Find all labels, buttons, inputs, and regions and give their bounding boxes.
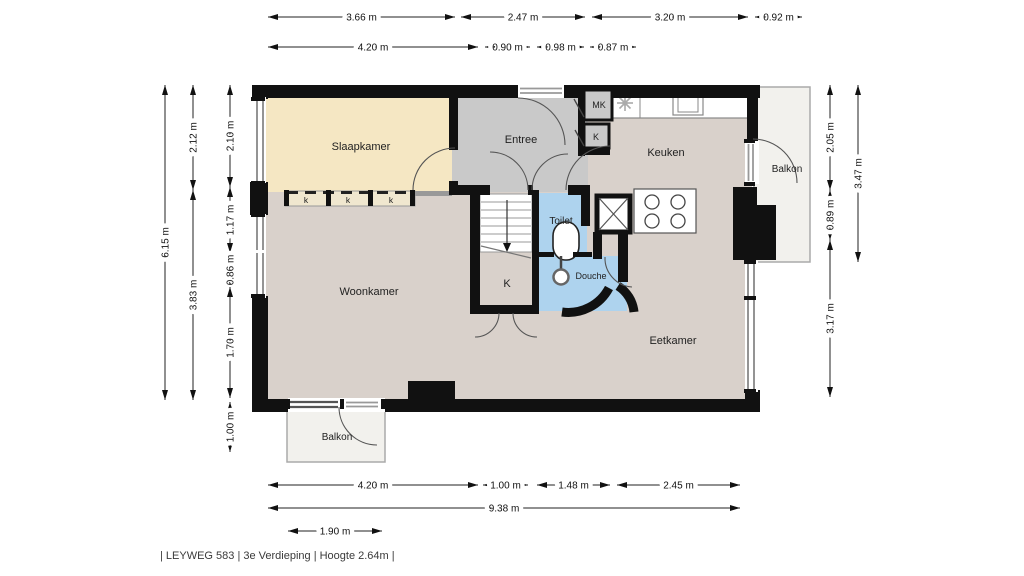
- kast-label: K: [593, 132, 599, 142]
- dimension: 1.17 m: [226, 187, 237, 253]
- dimension-label: 4.20 m: [358, 43, 389, 54]
- room-balkon-top-label: Balkon: [772, 164, 803, 175]
- dimension-label: 3.17 m: [826, 303, 837, 334]
- dimension-label: 0.86 m: [226, 255, 237, 286]
- dimension: 4.20 m: [268, 481, 478, 492]
- dimension: 1.00 m: [226, 402, 237, 452]
- dimension-label: 2.45 m: [663, 481, 694, 492]
- room-entree-label: Entree: [505, 134, 537, 146]
- meterkast-label: MK: [592, 100, 606, 110]
- dimension-label: 4.20 m: [358, 481, 389, 492]
- dimension-label: 1.90 m: [320, 527, 351, 538]
- dimension: 3.17 m: [826, 240, 837, 397]
- dimension: 0.87 m: [590, 43, 636, 54]
- dimension: 1.90 m: [288, 527, 382, 538]
- dimension-label: 1.00 m: [226, 412, 237, 443]
- room-keuken-label: Keuken: [647, 147, 684, 159]
- dimension: 3.66 m: [268, 13, 455, 24]
- dimension-label: 1.70 m: [226, 327, 237, 358]
- shaft: [597, 196, 630, 232]
- dimension: 0.89 m: [826, 190, 837, 240]
- chimney-block: [733, 187, 757, 260]
- dimension-label: 9.38 m: [489, 504, 520, 515]
- dimension-label: 3.47 m: [854, 158, 865, 189]
- dimension: 3.83 m: [189, 190, 200, 400]
- room-douche-floor: [537, 256, 627, 311]
- dimension-label: 0.89 m: [826, 200, 837, 231]
- dimension: 6.15 m: [161, 85, 172, 400]
- floorplan-svg: Slaapkamer Entree Keuken Woonkamer Eetka…: [0, 0, 1024, 576]
- dimension-label: 0.92 m: [763, 13, 794, 24]
- dimension: 0.90 m: [485, 43, 530, 54]
- dimension: 2.47 m: [461, 13, 585, 24]
- dimension: 1.70 m: [226, 287, 237, 398]
- dimension-label: 2.10 m: [226, 121, 237, 152]
- dimension-label: 0.90 m: [492, 43, 523, 54]
- room-eetkamer-label: Eetkamer: [649, 335, 696, 347]
- footer-text: | LEYWEG 583 | 3e Verdieping | Hoogte 2.…: [160, 550, 395, 562]
- dimension: 0.92 m: [755, 13, 802, 24]
- dimension-label: 3.83 m: [189, 280, 200, 311]
- dimension-label: 3.66 m: [346, 13, 377, 24]
- dimension: 9.38 m: [268, 504, 740, 515]
- staircase: [480, 194, 532, 258]
- dimension-label: 1.00 m: [490, 481, 521, 492]
- dimension: 0.98 m: [537, 43, 584, 54]
- room-douche-label: Douche: [575, 271, 606, 281]
- dimension: 3.20 m: [592, 13, 748, 24]
- floorplan-page: Slaapkamer Entree Keuken Woonkamer Eetka…: [0, 0, 1024, 576]
- dimension: 2.12 m: [189, 85, 200, 190]
- dimension-label: 2.12 m: [189, 122, 200, 153]
- dimension-label: 0.98 m: [545, 43, 576, 54]
- dimension-label: 1.17 m: [226, 205, 237, 236]
- dimension-label: 3.20 m: [655, 13, 686, 24]
- dimension: 3.47 m: [854, 85, 865, 262]
- room-toilet-label: Toilet: [549, 216, 573, 227]
- dimension: 2.10 m: [226, 85, 237, 187]
- dimension: 2.05 m: [826, 85, 837, 190]
- dimension: 4.20 m: [268, 43, 478, 54]
- dimension: 1.48 m: [537, 481, 610, 492]
- room-woonkamer-label: Woonkamer: [339, 286, 398, 298]
- dimension-label: 2.47 m: [508, 13, 539, 24]
- dimension: 2.45 m: [617, 481, 740, 492]
- dimension-label: 6.15 m: [161, 227, 172, 258]
- dimension: 0.86 m: [226, 253, 237, 287]
- room-slaapkamer-label: Slaapkamer: [332, 141, 391, 153]
- dimension-label: 1.48 m: [558, 481, 589, 492]
- dimension-label: 2.05 m: [826, 122, 837, 153]
- dimension-label: 0.87 m: [598, 43, 629, 54]
- dimension: 1.00 m: [483, 481, 528, 492]
- room-balkon-bottom-label: Balkon: [322, 432, 353, 443]
- stove-icon: [634, 189, 696, 233]
- kast-trap-label: K: [503, 278, 511, 290]
- chimney-block: [757, 205, 776, 260]
